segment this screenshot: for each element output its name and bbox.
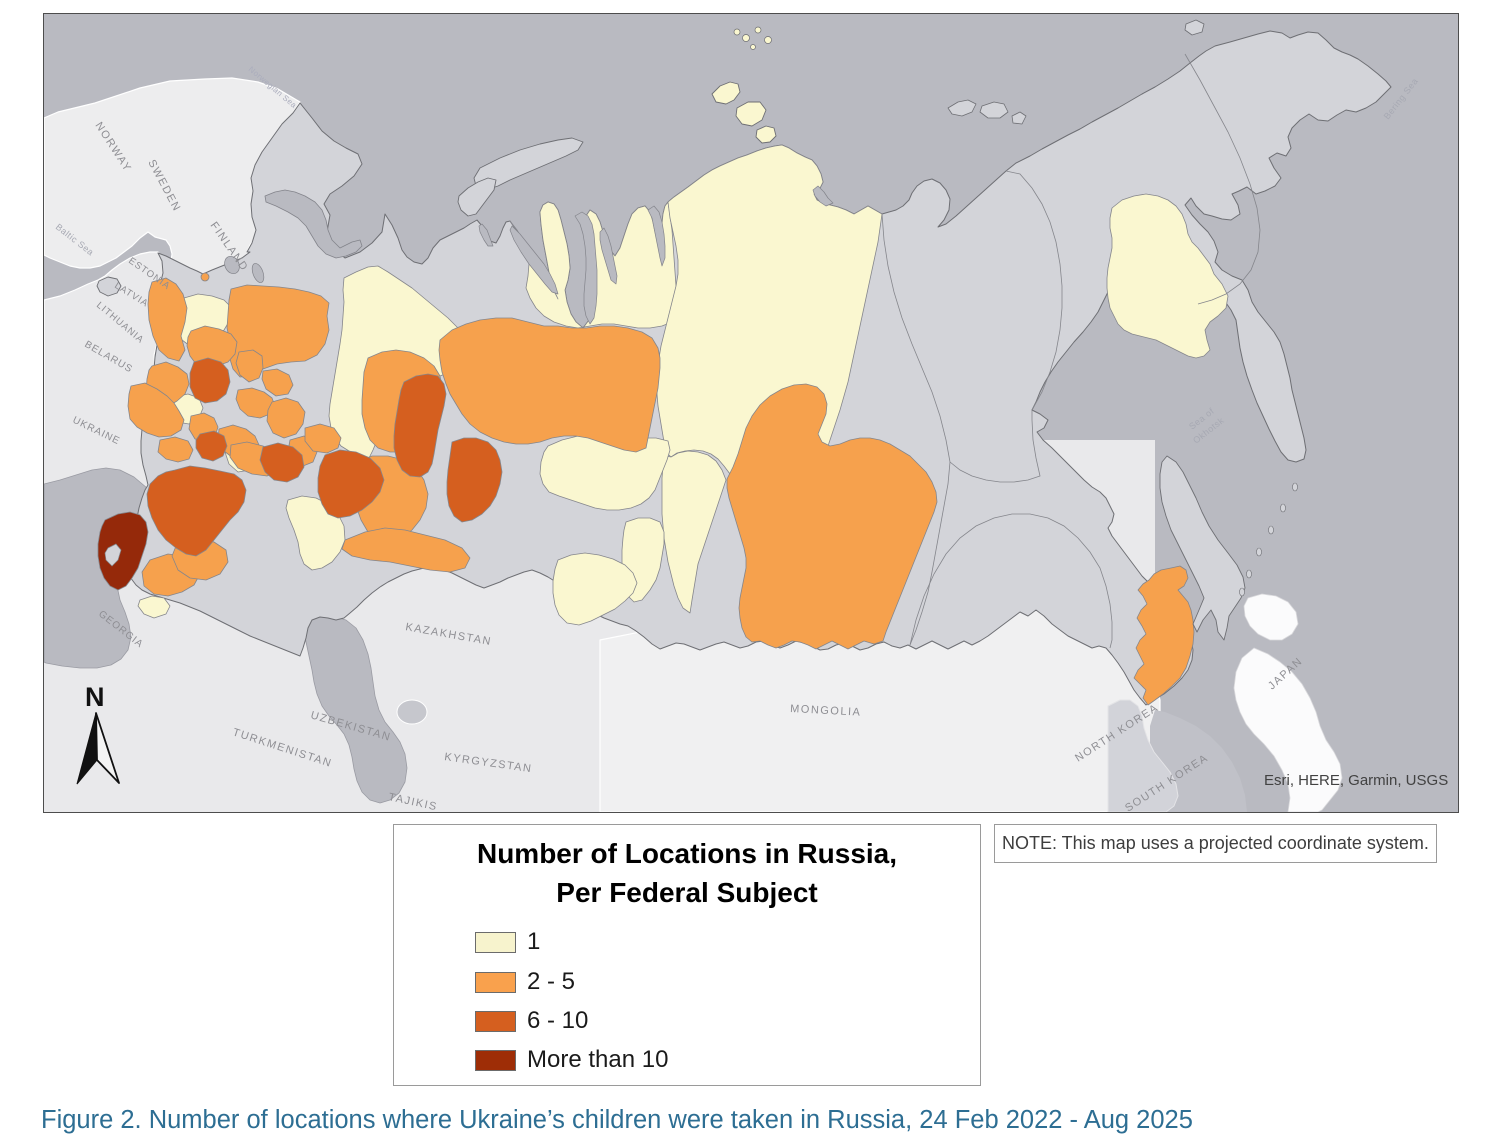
svg-text:N: N xyxy=(85,682,105,712)
svg-text:Esri, HERE, Garmin, USGS: Esri, HERE, Garmin, USGS xyxy=(1264,772,1448,789)
